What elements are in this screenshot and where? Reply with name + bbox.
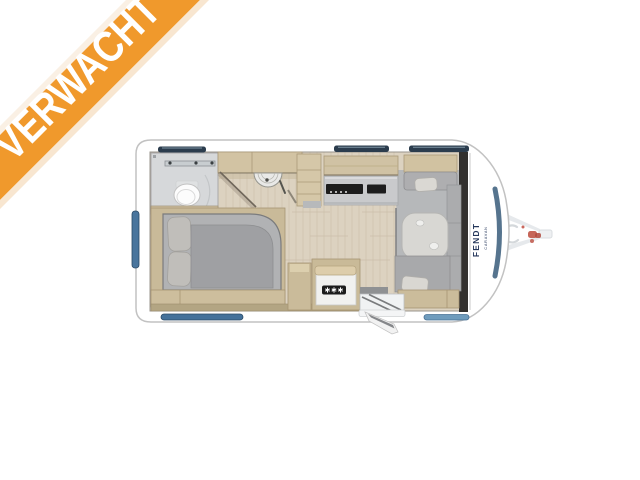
svg-text:CARAVAN: CARAVAN [484,226,488,249]
svg-text:FENDT: FENDT [471,223,481,257]
